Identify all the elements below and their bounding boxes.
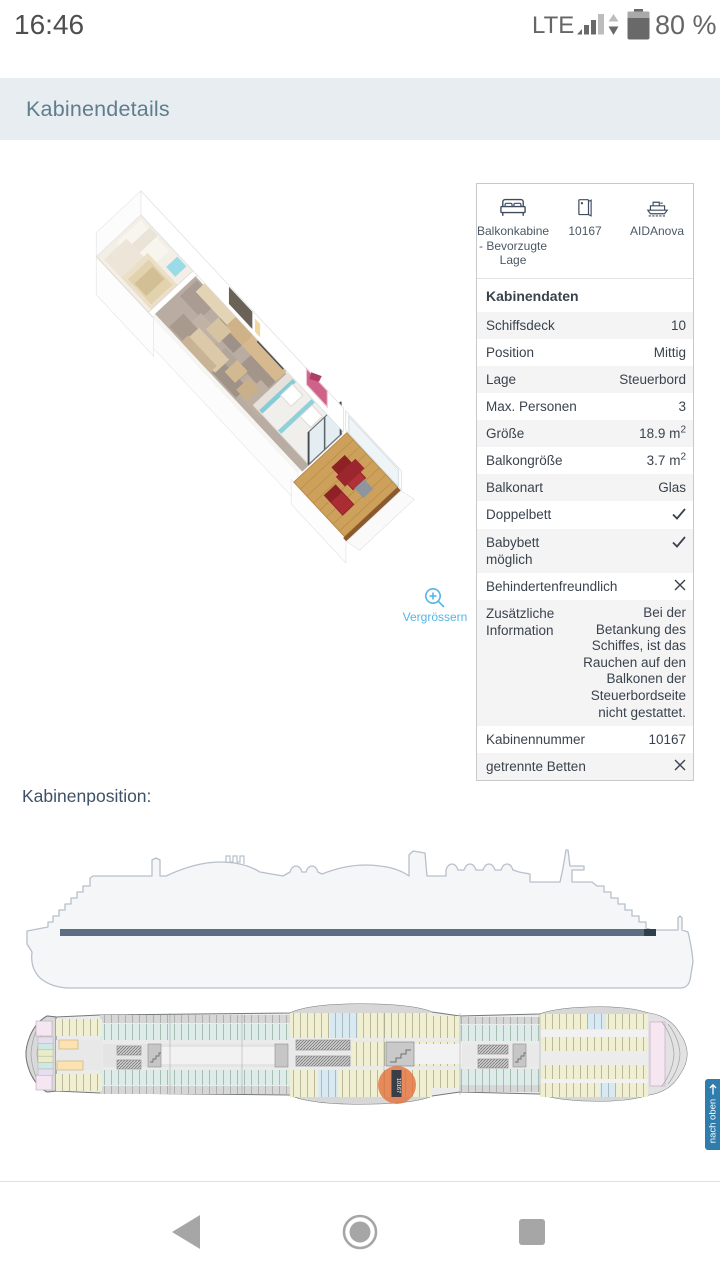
svg-text:10167: 10167 (395, 1078, 401, 1093)
